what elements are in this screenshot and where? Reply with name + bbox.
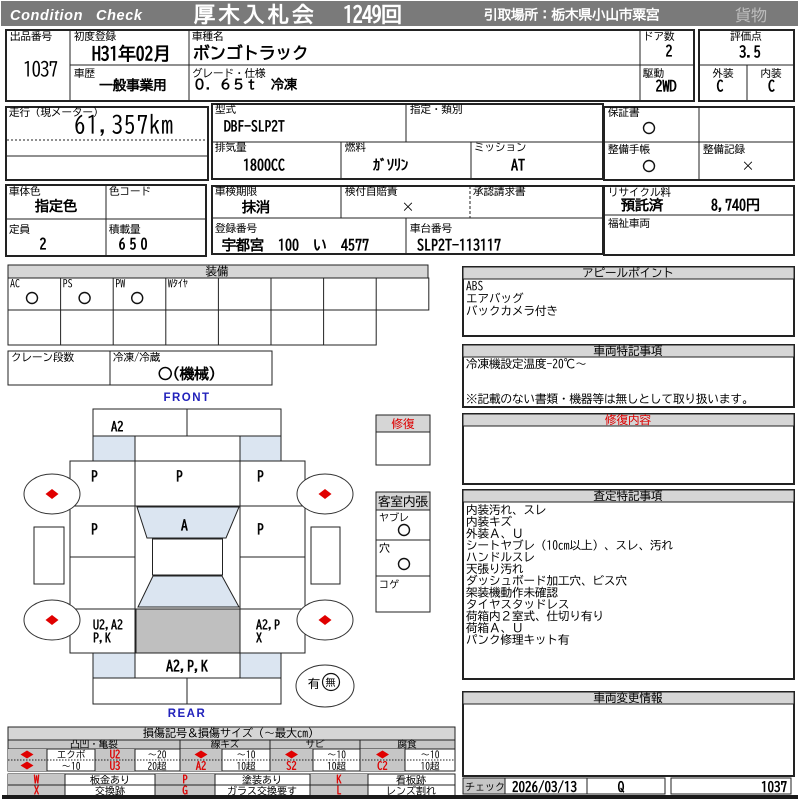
svg-text:Condition: Condition (10, 8, 83, 24)
svg-text:FRONT: FRONT (163, 392, 210, 404)
svg-text:REAR: REAR (168, 708, 207, 720)
svg-text:Check: Check (96, 8, 143, 24)
